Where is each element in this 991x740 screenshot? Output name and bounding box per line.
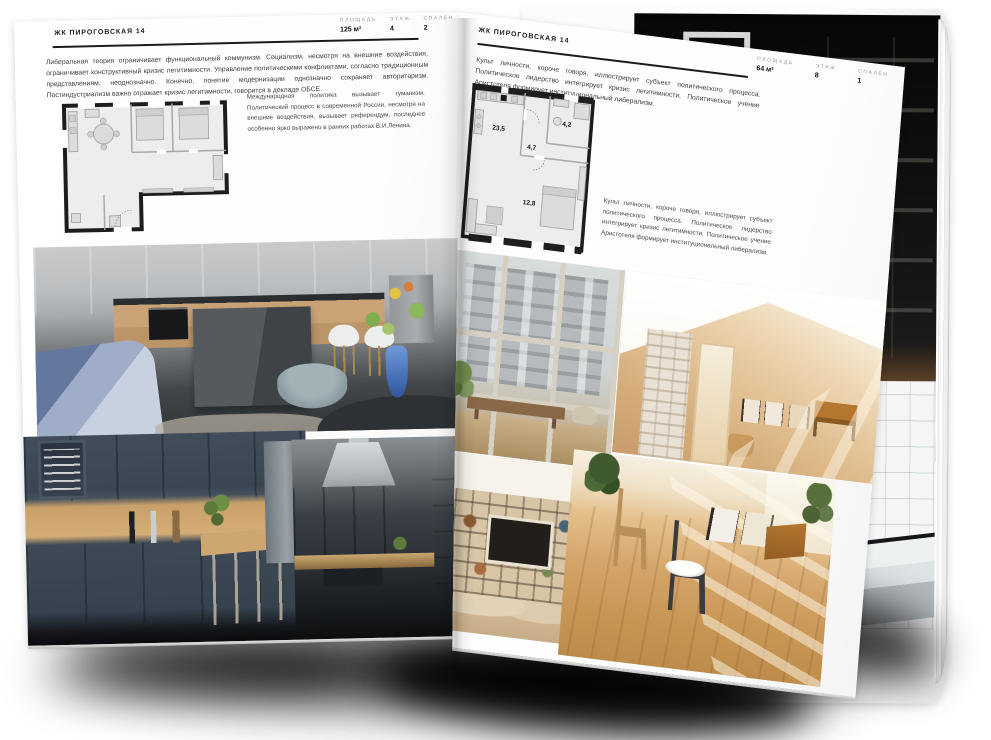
dark-table xyxy=(317,393,475,438)
stat-value: 4 xyxy=(390,25,411,32)
floor-plan-125 xyxy=(57,95,235,239)
side-note: Международная политика вызывает гуманизм… xyxy=(247,89,426,136)
stat-floor: ЭТАЖ 4 xyxy=(390,16,411,32)
page-title: ЖК ПИРОГОВСКАЯ 14 xyxy=(54,28,145,37)
dishes xyxy=(43,448,81,491)
photo-kitchen-hood xyxy=(292,436,480,640)
stat-bedrooms: СПАЛЕН 2 xyxy=(423,15,454,32)
extractor-hood xyxy=(321,441,396,487)
stat-value: 125 м² xyxy=(340,26,377,34)
side-note: Культ личности, короче говоря, иллюстрир… xyxy=(601,196,773,259)
stat-bedrooms: СПАЛЕН 1 xyxy=(857,68,889,88)
photo-kitchen-living xyxy=(33,238,475,438)
stat-label: ЭТАЖ xyxy=(390,16,411,22)
stats-block: ПЛОЩАДЬ 64 м² ЭТАЖ 8 СПАЛЕН 1 xyxy=(756,56,889,88)
stat-area: ПЛОЩАДЬ 125 м² xyxy=(340,17,377,34)
page-title: ЖК ПИРОГОВСКАЯ 14 xyxy=(478,27,569,45)
svg-text:4,7: 4,7 xyxy=(527,144,537,152)
stove xyxy=(324,568,383,587)
stat-label: СПАЛЕН xyxy=(858,68,889,78)
floor-plan-64: 23,5 4,7 4,2 12,8 xyxy=(454,78,602,260)
svg-text:4,2: 4,2 xyxy=(562,121,572,129)
header-rule xyxy=(53,38,419,48)
stat-label: ЭТАЖ xyxy=(815,63,836,72)
stat-area: ПЛОЩАДЬ 64 м² xyxy=(756,56,794,76)
left-page: ЖК ПИРОГОВСКАЯ 14 ПЛОЩАДЬ 125 м² ЭТАЖ 4 … xyxy=(14,12,480,646)
stat-value: 2 xyxy=(424,24,455,32)
stat-label: СПАЛЕН xyxy=(423,15,454,22)
dark-cabinets xyxy=(293,485,401,555)
stat-value: 1 xyxy=(857,77,888,88)
tv-screen xyxy=(489,517,552,567)
photo-loft-window xyxy=(436,249,626,470)
flower-bouquet xyxy=(345,269,443,351)
stat-value: 64 м² xyxy=(756,65,793,76)
blue-sofa xyxy=(33,337,165,437)
stat-floor: ЭТАЖ 8 xyxy=(815,63,837,81)
stat-label: ПЛОЩАДЬ xyxy=(340,17,377,24)
stats-block: ПЛОЩАДЬ 125 м² ЭТАЖ 4 СПАЛЕН 2 xyxy=(340,15,454,34)
brick-wall xyxy=(638,328,692,460)
blue-vase xyxy=(386,346,409,398)
pouf xyxy=(277,362,348,409)
right-page: ЖК ПИРОГОВСКАЯ 14 ПЛОЩАДЬ 64 м² ЭТАЖ 8 С… xyxy=(406,12,905,697)
photo-navy-kitchen xyxy=(23,430,310,645)
counter-props xyxy=(118,510,209,543)
herb-plant xyxy=(200,491,235,534)
stat-value: 8 xyxy=(815,72,836,82)
herb-plant xyxy=(389,531,410,555)
photo-beige-room xyxy=(612,270,887,483)
oven xyxy=(148,307,188,340)
magazine-mockup-scene: ЖК ПИРОГОВСКАЯ 14 ПЛОЩАДЬ 125 м² ЭТАЖ 4 … xyxy=(0,0,991,740)
photo-sunny-room xyxy=(558,449,836,687)
